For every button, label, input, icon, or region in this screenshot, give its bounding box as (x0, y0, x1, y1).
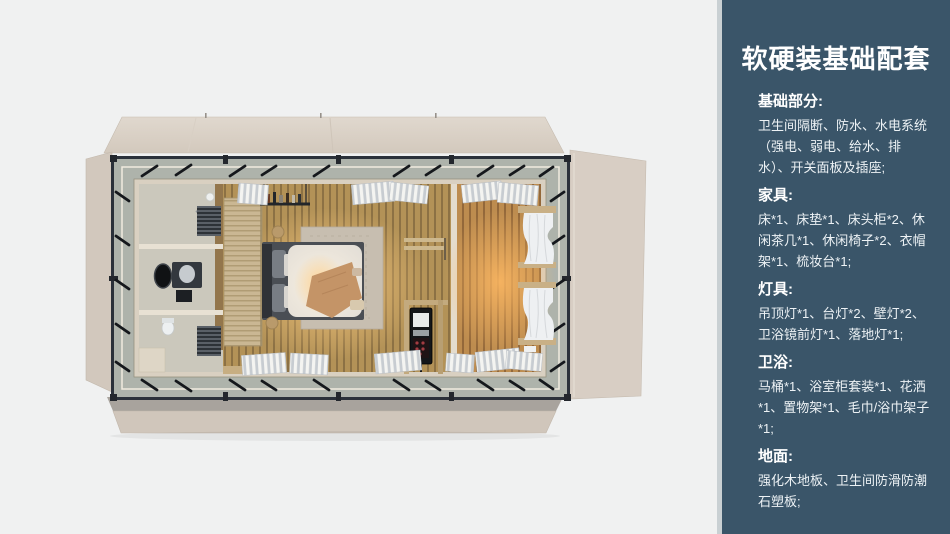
section-body: 床*1、床垫*1、床头柜*2、休闲茶几*1、休闲椅子*2、衣帽架*1、梳妆台*1… (758, 209, 930, 272)
bottom-flap (113, 411, 556, 433)
shower-head (206, 193, 214, 201)
left-flap (86, 152, 112, 392)
pouf (266, 317, 278, 329)
section-body: 吊顶灯*1、台灯*2、壁灯*2、卫浴镜前灯*1、落地灯*1; (758, 303, 930, 345)
sink (179, 265, 195, 283)
pillow (272, 250, 286, 278)
section-flooring: 地面: 强化木地板、卫生间防滑防潮石塑板; (758, 447, 930, 512)
pouf (272, 226, 284, 238)
right-door-panel (570, 150, 646, 399)
slide: 软硬装基础配套 基础部分: 卫生间隔断、防水、水电系统（强电、弱电、给水、排水）… (0, 0, 950, 534)
pillow (272, 284, 286, 312)
section-heading: 灯具: (758, 280, 930, 300)
towel-radiator-top (197, 206, 221, 236)
section-furniture: 家具: 床*1、床垫*1、床头柜*2、休闲茶几*1、休闲椅子*2、衣帽架*1、梳… (758, 186, 930, 272)
info-sidebar: 软硬装基础配套 基础部分: 卫生间隔断、防水、水电系统（强电、弱电、给水、排水）… (722, 0, 950, 534)
section-heading: 基础部分: (758, 92, 930, 112)
section-heading: 家具: (758, 186, 930, 206)
towel-radiator-bottom (197, 326, 221, 356)
wardrobe (224, 198, 262, 346)
section-body: 马桶*1、浴室柜套装*1、花洒*1、置物架*1、毛巾/浴巾架子*1; (758, 376, 930, 439)
section-heading: 地面: (758, 447, 930, 467)
headboard (262, 244, 272, 318)
bath-storage (139, 348, 165, 372)
sidebar-title: 软硬装基础配套 (722, 42, 950, 76)
vanity-mirror (155, 264, 172, 288)
section-body: 强化木地板、卫生间防滑防潮石塑板; (758, 470, 930, 512)
section-body: 卫生间隔断、防水、水电系统（强电、弱电、给水、排水）、开关面板及插座; (758, 115, 930, 178)
sidebar-sections: 基础部分: 卫生间隔断、防水、水电系统（强电、弱电、给水、排水）、开关面板及插座… (758, 92, 930, 512)
room-top-view-render (0, 0, 717, 534)
room-interior (134, 179, 556, 377)
section-basics: 基础部分: 卫生间隔断、防水、水电系统（强电、弱电、给水、排水）、开关面板及插座… (758, 92, 930, 178)
section-heading: 卫浴: (758, 353, 930, 373)
section-bathroom: 卫浴: 马桶*1、浴室柜套装*1、花洒*1、置物架*1、毛巾/浴巾架子*1; (758, 353, 930, 439)
toilet (162, 321, 174, 335)
section-lighting: 灯具: 吊顶灯*1、台灯*2、壁灯*2、卫浴镜前灯*1、落地灯*1; (758, 280, 930, 345)
room-render-area (0, 0, 717, 534)
roof-panel (104, 117, 564, 153)
